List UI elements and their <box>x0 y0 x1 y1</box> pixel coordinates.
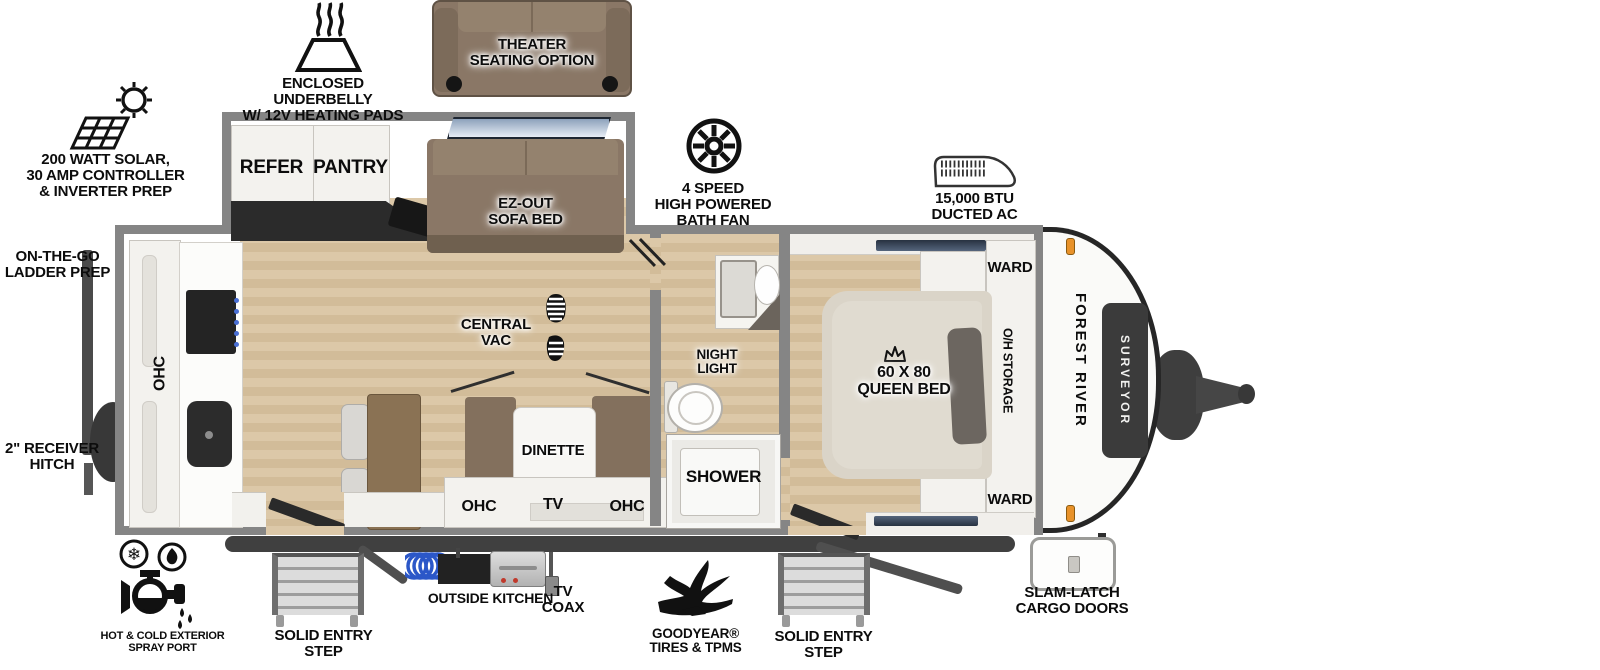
theater-callout: THEATER SEATING OPTION <box>432 37 632 69</box>
central-vac-label: CENTRAL VAC <box>448 317 544 349</box>
dinette-bench-right <box>592 396 658 480</box>
oh-storage-label: O/H STORAGE <box>1000 328 1013 458</box>
receiver-hitch-callout: 2" RECEIVER HITCH <box>0 441 104 473</box>
model-badge: SURVEYOR <box>1102 303 1148 458</box>
solar-callout: 200 WATT SOLAR, 30 AMP CONTROLLER & INVE… <box>18 152 193 200</box>
slideout-window <box>447 117 611 139</box>
cabinet-door-slot <box>142 255 157 367</box>
step-foot <box>782 615 790 627</box>
entry-step-icon <box>778 553 870 615</box>
bedroom-window-bottom <box>874 516 978 526</box>
tv-label: TV <box>528 496 578 513</box>
step-foot <box>350 615 358 627</box>
step-foot <box>856 615 864 627</box>
fan-icon <box>684 116 744 176</box>
sink-faucet <box>205 431 213 439</box>
refrigerator-label: REFER <box>231 158 312 178</box>
marker-light-bottom <box>1066 505 1075 522</box>
crown-icon <box>882 346 908 364</box>
dinette-label: DINETTE <box>503 443 603 459</box>
hitch-a-frame <box>1196 376 1242 414</box>
spray-port-callout: HOT & COLD EXTERIOR SPRAY PORT <box>100 631 225 655</box>
rear-counter <box>179 242 243 528</box>
toilet-seat-ring <box>678 391 714 425</box>
theater-seat-divider <box>531 2 533 32</box>
outside-griddle <box>490 551 546 587</box>
bedroom-passage-opening <box>779 458 790 520</box>
ducted-ac-callout: 15,000 BTU DUCTED AC <box>912 191 1037 223</box>
sofa-label: EZ-OUT SOFA BED <box>427 196 624 228</box>
entry-threshold-bedroom <box>788 526 866 535</box>
frame-rail <box>225 536 1015 552</box>
ladder-prep-callout: ON-THE-GO LADDER PREP <box>0 249 115 281</box>
svg-text:❄: ❄ <box>127 545 141 564</box>
sofa-seat-divider <box>525 141 527 175</box>
underbelly-callout: ENCLOSED UNDERBELLY W/ 12V HEATING PADS <box>238 76 408 124</box>
cooktop <box>186 290 236 354</box>
dining-chair <box>341 404 370 460</box>
cabinet-door-slot <box>142 401 157 513</box>
outside-faucet <box>456 548 460 558</box>
model-badge-label: SURVEYOR <box>1118 335 1132 426</box>
queen-bed-label: 60 X 80 QUEEN BED <box>822 364 986 398</box>
dinette-bench-left <box>465 397 516 481</box>
hitch-coupler <box>1238 384 1255 404</box>
rv-floorplan-diagram: FOREST RIVER SURVEYOR REFER PANTRY EZ-OU… <box>0 0 1600 670</box>
cargo-door-latch <box>1068 556 1080 573</box>
entry-step-icon <box>272 553 364 615</box>
step-left-callout: SOLID ENTRY STEP <box>256 628 391 660</box>
boot-print-icon <box>543 293 569 369</box>
ac-unit-icon <box>928 150 1020 190</box>
theater-foot <box>446 76 462 92</box>
sofa-front-edge <box>427 235 624 253</box>
solar-panel-icon <box>68 80 160 152</box>
bath-sink <box>720 260 757 318</box>
faucet-hot-cold-icon: ❄ <box>112 538 216 630</box>
kitchen-sink <box>187 401 232 467</box>
rear-ohc-label: OHC <box>151 354 168 394</box>
brand-lettering: FOREST RIVER <box>1072 293 1088 471</box>
griddle-knob <box>501 578 506 583</box>
step-right-callout: SOLID ENTRY STEP <box>756 629 891 661</box>
ward-top-label: WARD <box>982 260 1038 276</box>
pantry-label: PANTRY <box>313 158 388 178</box>
shower-label: SHOWER <box>667 468 780 486</box>
ward-bottom-label: WARD <box>982 492 1038 508</box>
tv-coax-callout: TV COAX <box>528 584 598 616</box>
step-foot <box>276 615 284 627</box>
outside-kitchen-shelf <box>438 554 490 584</box>
theater-foot <box>602 76 618 92</box>
coax-connector-icon <box>549 552 553 576</box>
griddle-knob <box>513 578 518 583</box>
ohc-left-label: OHC <box>450 498 508 515</box>
heating-pad-icon <box>286 2 362 76</box>
griddle-handle <box>499 566 537 570</box>
night-light-label: NIGHT LIGHT <box>678 348 756 377</box>
ohc-right-label: OHC <box>598 498 656 515</box>
tires-callout: GOODYEAR® TIRES & TPMS <box>638 627 753 656</box>
bath-basin <box>754 265 780 305</box>
cargo-door <box>1030 537 1116 591</box>
bedroom-window-top <box>876 240 986 251</box>
cooktop-knobs <box>234 298 239 303</box>
goodyear-wingfoot-icon <box>652 550 738 624</box>
cargo-doors-callout: SLAM-LATCH CARGO DOORS <box>998 585 1146 617</box>
marker-light-top <box>1066 238 1075 255</box>
entry-threshold-main <box>266 526 344 535</box>
bath-fan-callout: 4 SPEED HIGH POWERED BATH FAN <box>648 181 778 229</box>
